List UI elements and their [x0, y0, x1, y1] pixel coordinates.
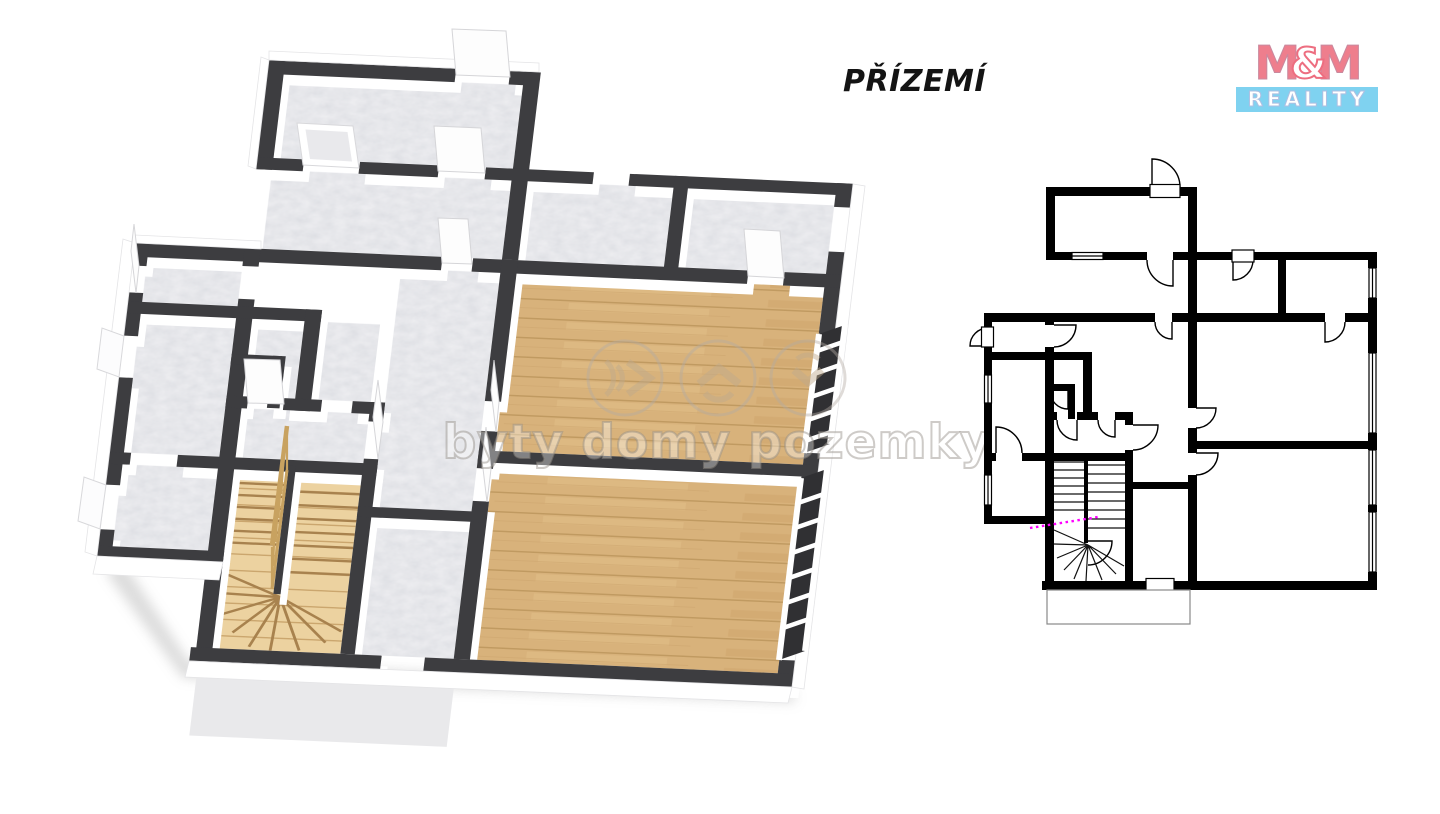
door-arcs [970, 159, 1345, 616]
logo-ampersand: & [1290, 43, 1324, 86]
entrance-porch-2d [1047, 590, 1190, 624]
door-jambs [982, 185, 1255, 592]
real-estate-floorplan-page: byty domy pozemky [0, 0, 1440, 810]
floor-plan-graphic: byty domy pozemky [0, 0, 1440, 810]
plan-3d-render [76, 29, 872, 762]
plan-2d-schematic [970, 159, 1377, 624]
logo-reality-bar: REALITY [1236, 87, 1378, 112]
logo-mm-text: M & M [1236, 42, 1378, 86]
walls-2d [984, 187, 1377, 590]
floor-title: PŘÍZEMÍ [843, 64, 986, 99]
agency-logo: M & M REALITY [1236, 42, 1378, 112]
watermark-text: byty domy pozemky [443, 415, 992, 470]
window-symbols [985, 253, 1377, 573]
stair-treads-2d [1054, 462, 1125, 581]
garage-window-frame [297, 123, 359, 168]
